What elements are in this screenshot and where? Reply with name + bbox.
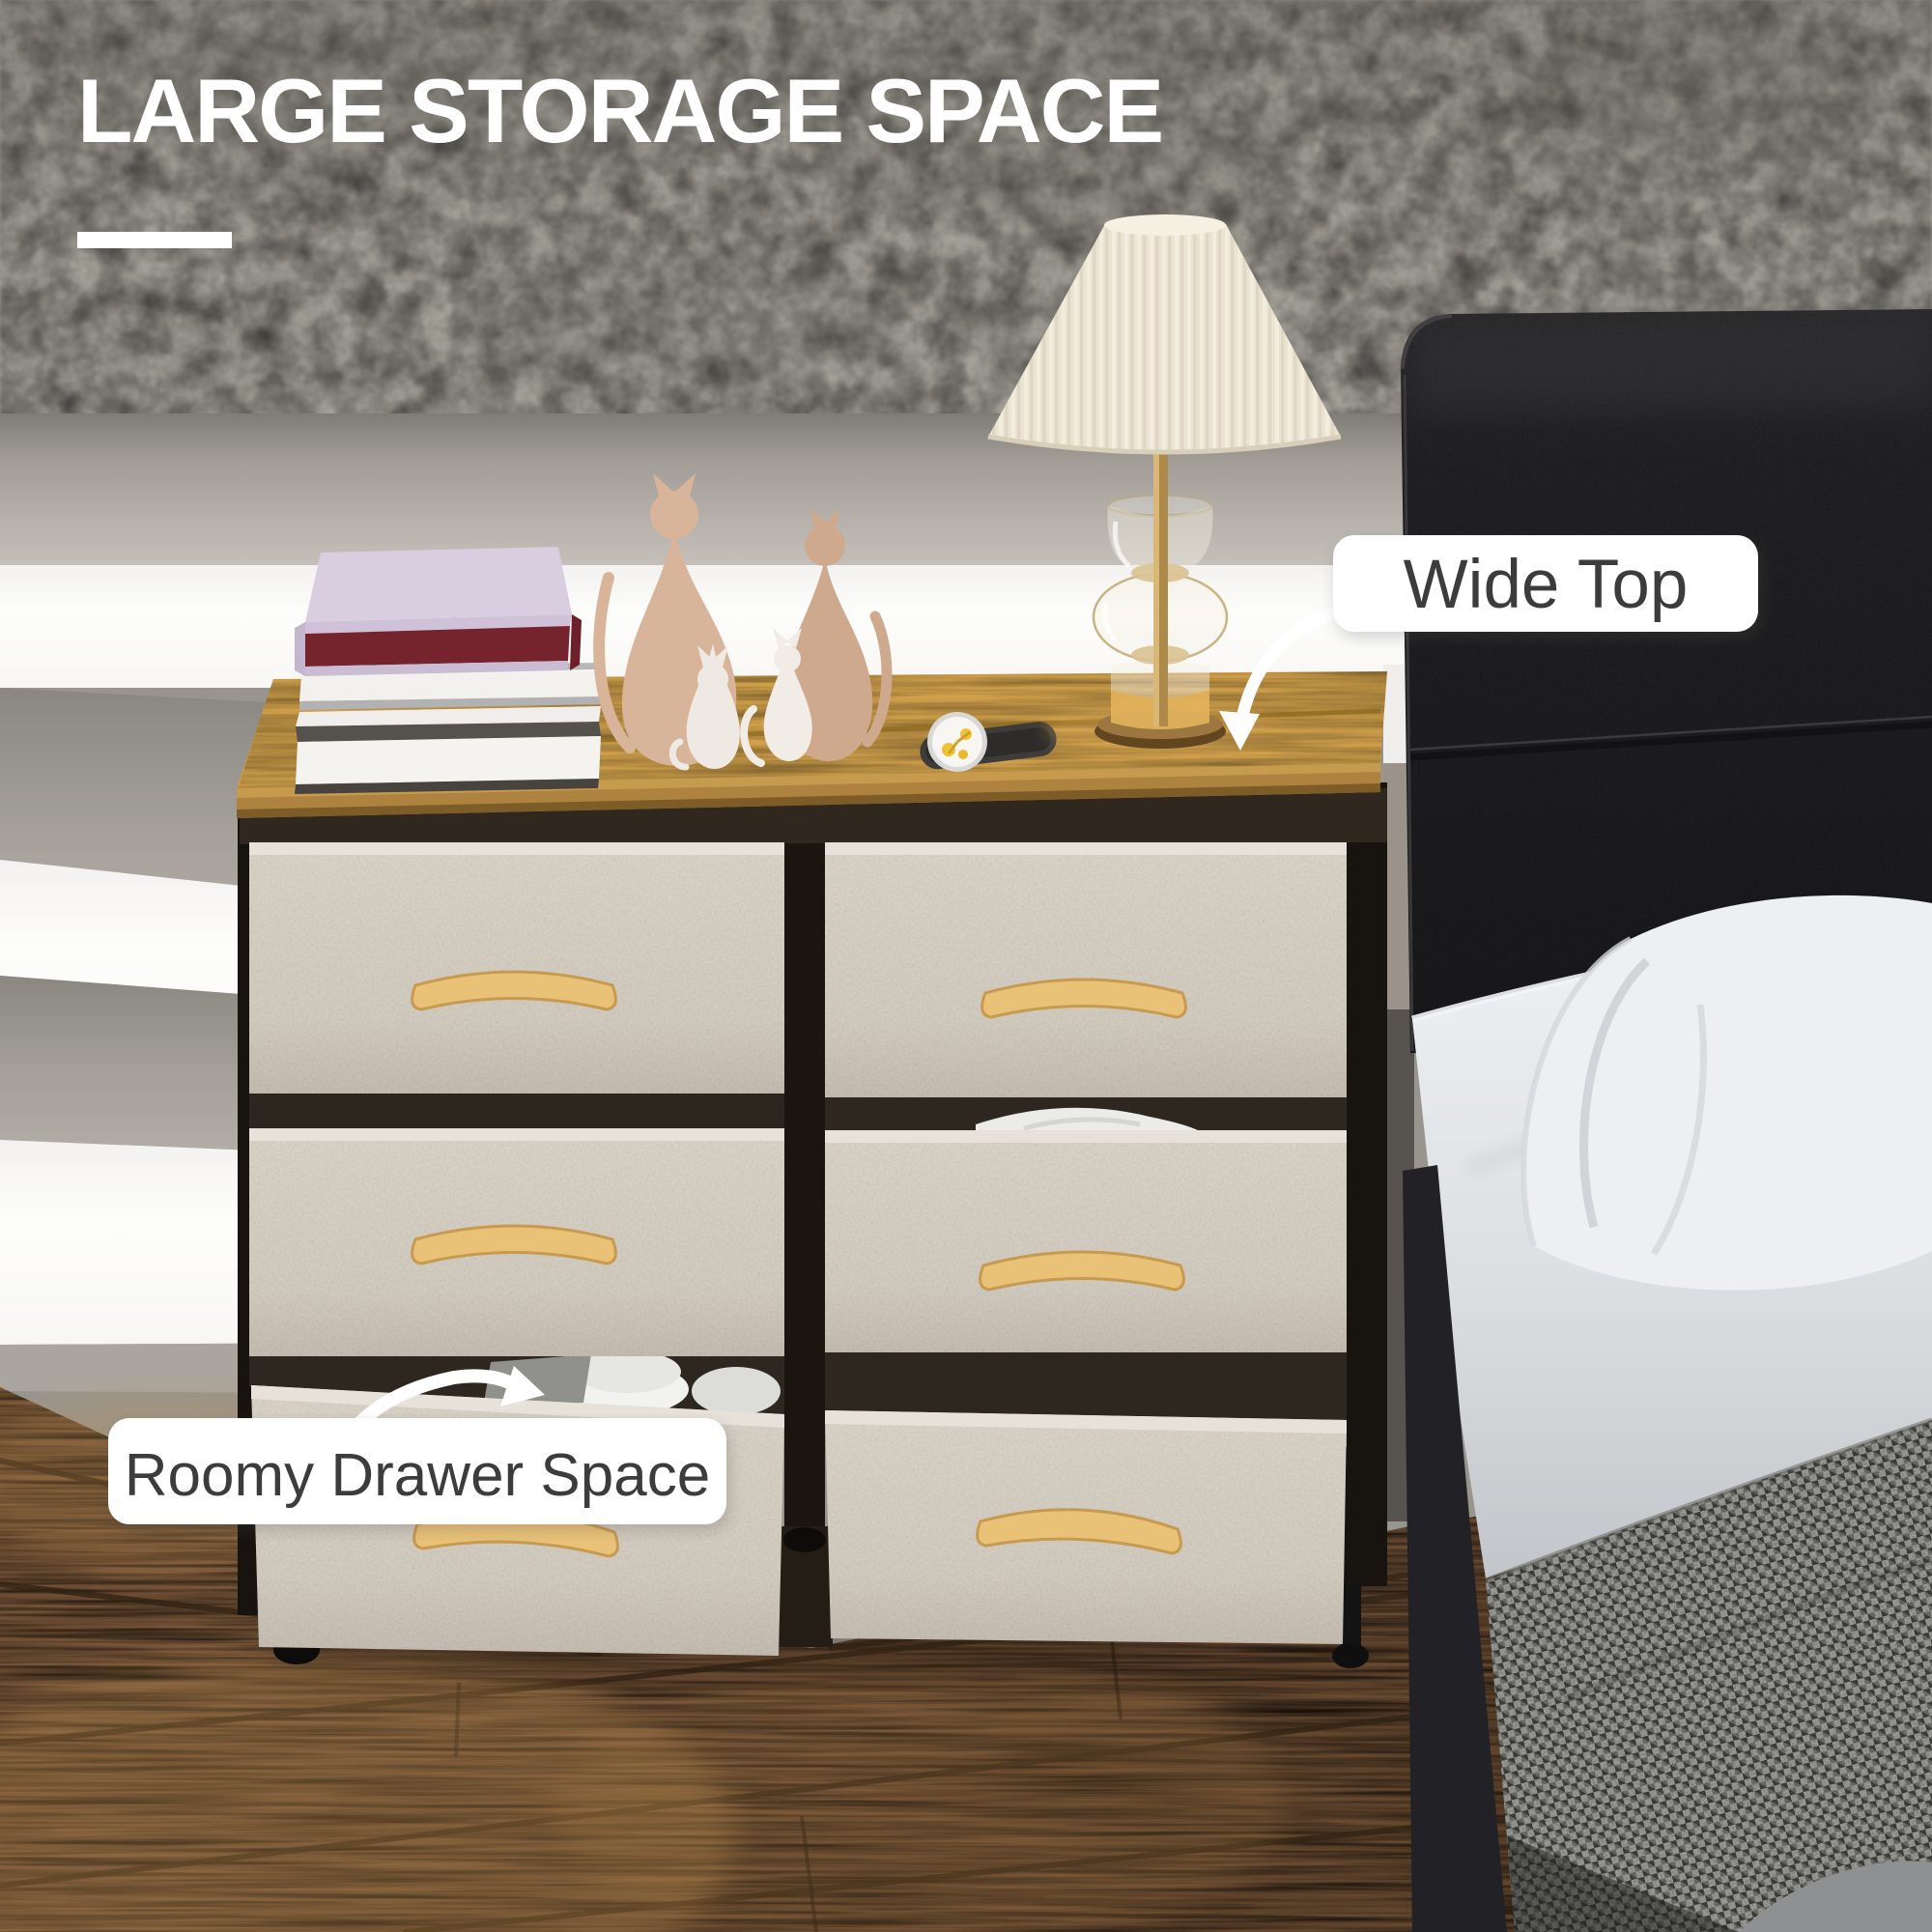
svg-text:Roomy Drawer Space: Roomy Drawer Space [125, 1442, 710, 1509]
svg-text:LARGE STORAGE SPACE: LARGE STORAGE SPACE [77, 60, 1162, 161]
svg-text:Wide Top: Wide Top [1404, 547, 1689, 623]
